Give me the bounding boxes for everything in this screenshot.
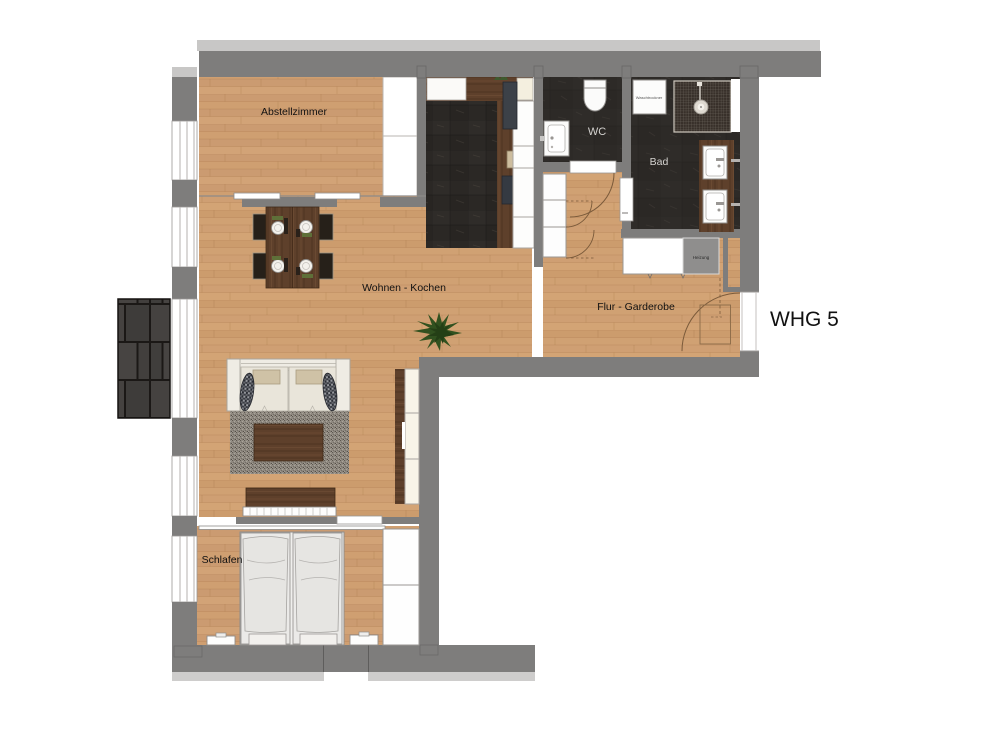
svg-text:WC: WC bbox=[588, 126, 606, 138]
svg-text:Heizung: Heizung bbox=[693, 255, 710, 260]
svg-text:Abstellzimmer: Abstellzimmer bbox=[261, 106, 327, 118]
svg-text:Flur - Garderobe: Flur - Garderobe bbox=[597, 301, 675, 313]
svg-text:Wohnen - Kochen: Wohnen - Kochen bbox=[362, 282, 446, 294]
svg-text:Schlafen: Schlafen bbox=[202, 554, 243, 566]
svg-text:WHG 5: WHG 5 bbox=[770, 308, 839, 331]
svg-text:Bad: Bad bbox=[650, 156, 669, 168]
svg-text:Waschtrockner: Waschtrockner bbox=[636, 95, 663, 100]
